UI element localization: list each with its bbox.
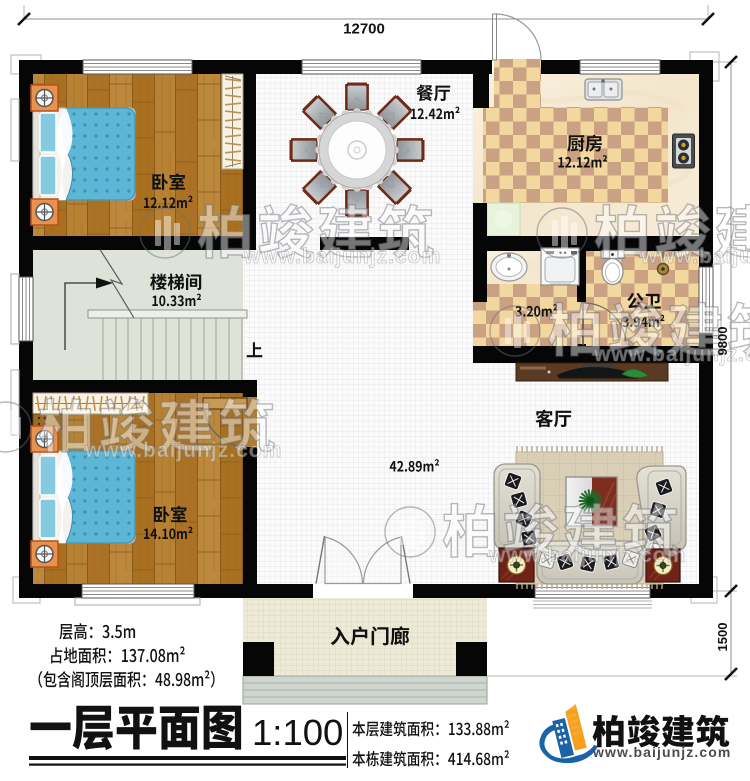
svg-text:www.baijunjz.com: www.baijunjz.com: [640, 245, 750, 268]
svg-text:www.baijunjz.com: www.baijunjz.com: [592, 744, 731, 760]
svg-text:1:100: 1:100: [252, 712, 343, 753]
svg-text:9800: 9800: [715, 327, 730, 356]
svg-text:www.baijunjz.com: www.baijunjz.com: [84, 439, 282, 462]
svg-text:1500: 1500: [715, 623, 730, 652]
svg-text:www.baijunjz.com: www.baijunjz.com: [488, 544, 686, 567]
svg-text:www.baijunjz.com: www.baijunjz.com: [243, 245, 441, 268]
svg-text:12700: 12700: [343, 21, 385, 38]
